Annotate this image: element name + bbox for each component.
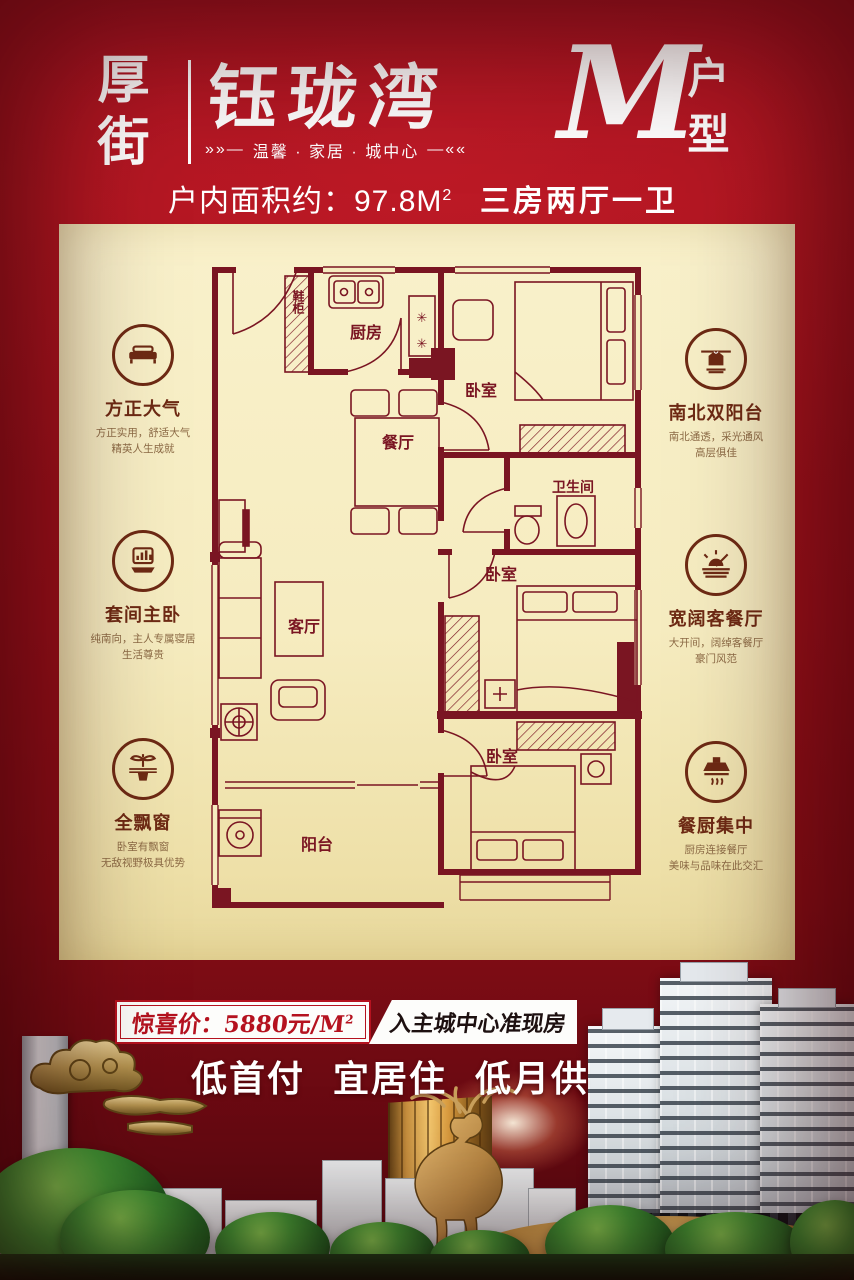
feature-title: 全飘窗	[78, 809, 208, 835]
floorplan-drawing: 鞋柜 厨房 卧室 餐厅 卫生间 客厅 卧室 卧室 阳台 ✳ ✳	[205, 260, 645, 910]
feature-circle	[112, 738, 174, 800]
price-banner: 惊喜价：5880元/M2	[115, 1000, 371, 1044]
chart-icon	[125, 543, 161, 579]
label-bedroom-bottom: 卧室	[486, 747, 518, 766]
slogan-low-downpayment: 低首付	[191, 1058, 305, 1099]
rooms-summary: 三房两厅一卫	[480, 176, 678, 220]
tagline-text: 温馨 · 家居 · 城中心	[253, 138, 419, 162]
feature-desc: 纯南向，主人专属寝居生活尊贵	[78, 631, 208, 664]
price-text: 惊喜价：5880元/M2	[131, 1005, 356, 1039]
feature-circle	[685, 328, 747, 390]
unit-letter: M	[558, 30, 700, 158]
feature-kitchen-dining: 餐厨集中 厨房连接餐厅美味与品味在此交汇	[651, 741, 781, 875]
label-bedroom-top: 卧室	[465, 381, 497, 400]
feature-desc-line: 美味与品味在此交汇	[669, 860, 764, 872]
feature-wide-living: 宽阔客餐厅 大开间，阔绰客餐厅豪门风范	[651, 534, 781, 668]
feature-title: 南北双阳台	[651, 399, 781, 425]
tower-roof	[778, 988, 836, 1008]
feature-desc-line: 高层俱佳	[695, 447, 737, 459]
label-shoe-cabinet: 鞋柜	[291, 289, 305, 314]
price-value: 5880	[223, 1011, 290, 1038]
feature-desc-line: 厨房连接餐厅	[685, 844, 748, 856]
label-balcony: 阳台	[301, 835, 333, 854]
feature-desc-line: 方正实用，舒适大气	[96, 427, 191, 439]
feature-desc-line: 纯南向，主人专属寝居	[91, 633, 196, 645]
tagline-left-arrows-icon: »»—	[205, 141, 245, 159]
brand-tagline: »»— 温馨 · 家居 · 城中心 —««	[196, 138, 476, 162]
ribbon-flag: 入主城中心准现房	[369, 1000, 577, 1044]
area-text: 户内面积约：97.8M2	[168, 176, 452, 220]
sunrise-icon	[698, 547, 734, 583]
stove-mark: ✳	[417, 310, 428, 325]
feature-title: 套间主卧	[78, 601, 208, 627]
label-living: 客厅	[288, 617, 320, 636]
sofa-icon	[125, 337, 161, 373]
label-bedroom-middle: 卧室	[485, 565, 517, 584]
slogan-row: 低首付宜居住低月供	[177, 1050, 517, 1102]
slogan-low-monthly: 低月供	[475, 1058, 589, 1099]
feature-desc-line: 南北通透，采光通风	[669, 431, 764, 443]
feature-square-layout: 方正大气 方正实用，舒适大气精英人生成就	[78, 324, 208, 458]
feature-desc: 南北通透，采光通风高层俱佳	[651, 429, 781, 462]
feature-double-balcony: 南北双阳台 南北通透，采光通风高层俱佳	[651, 328, 781, 462]
feature-desc: 方正实用，舒适大气精英人生成就	[78, 425, 208, 458]
poster: 厚街 钰珑湾 »»— 温馨 · 家居 · 城中心 —«« M 户型 户内面积约：…	[0, 0, 854, 1280]
floorplan-panel: 方正大气 方正实用，舒适大气精英人生成就 套间主卧 纯南向，主人专属寝居生活尊贵	[59, 224, 795, 960]
feature-desc-line: 卧室有飘窗	[117, 841, 170, 853]
feature-title: 餐厨集中	[651, 812, 781, 838]
stove-mark: ✳	[417, 336, 428, 351]
logo-divider	[188, 60, 191, 164]
feature-circle	[112, 324, 174, 386]
shirt-icon	[698, 341, 734, 377]
tagline-right-arrows-icon: —««	[427, 141, 467, 159]
label-bathroom: 卫生间	[552, 479, 594, 495]
feature-desc: 卧室有飘窗无敌视野极具优势	[78, 839, 208, 872]
feature-title: 方正大气	[78, 395, 208, 421]
unit-type-label: 户型	[684, 56, 726, 168]
price-unit: 元/M	[287, 1011, 347, 1038]
logo-vertical: 厚街	[92, 52, 144, 176]
slogan-livable: 宜居住	[333, 1058, 447, 1099]
feature-desc-line: 豪门风范	[695, 653, 737, 665]
feature-circle	[685, 534, 747, 596]
wardrobes	[285, 276, 625, 750]
feature-circle	[112, 530, 174, 592]
feature-master-suite: 套间主卧 纯南向，主人专属寝居生活尊贵	[78, 530, 208, 664]
feature-title: 宽阔客餐厅	[651, 605, 781, 631]
price-prefix: 惊喜价：	[131, 1011, 226, 1038]
feature-desc-line: 生活尊贵	[122, 649, 164, 661]
feature-desc-line: 大开间，阔绰客餐厅	[669, 637, 764, 649]
tree-icon	[125, 751, 161, 787]
feature-desc-line: 精英人生成就	[112, 443, 175, 455]
price-sup: 2	[345, 1012, 355, 1026]
feature-circle	[685, 741, 747, 803]
area-sup: 2	[442, 187, 452, 204]
feature-desc-line: 无敌视野极具优势	[101, 857, 185, 869]
feature-bay-window: 全飘窗 卧室有飘窗无敌视野极具优势	[78, 738, 208, 872]
tower-roof	[680, 962, 748, 982]
range-hood-icon	[698, 754, 734, 790]
feature-desc: 大开间，阔绰客餐厅豪门风范	[651, 635, 781, 668]
area-value: 户内面积约：97.8M	[168, 185, 442, 218]
ground-strip	[0, 1254, 854, 1280]
tower-roof	[602, 1008, 654, 1030]
label-dining: 餐厅	[381, 433, 414, 452]
ribbon-text: 入主城中心准现房	[378, 1006, 569, 1038]
brand-title: 钰珑湾	[204, 42, 451, 143]
label-kitchen: 厨房	[350, 323, 382, 342]
feature-desc: 厨房连接餐厅美味与品味在此交汇	[651, 842, 781, 875]
